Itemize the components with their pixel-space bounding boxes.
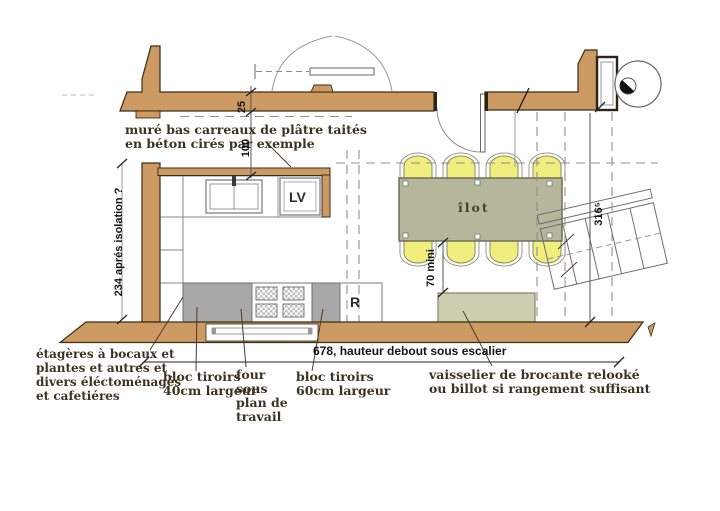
- dim-label-100: 100: [240, 133, 252, 163]
- island-leg: [547, 181, 552, 186]
- fridge-label: R: [350, 294, 360, 310]
- door-swing-arc: [437, 108, 481, 152]
- wall-notch: [136, 111, 160, 118]
- burner-icon: [256, 287, 277, 300]
- island-leg: [403, 181, 408, 186]
- boiler-symbol-icon: [615, 61, 661, 107]
- dim-label-234: 234 aprés isolation ?: [113, 162, 127, 322]
- dim-label-678: 678, hauteur debout sous escalier: [313, 344, 506, 358]
- island-leg: [403, 233, 408, 238]
- wall-fragment: [648, 323, 655, 336]
- drawer-block-60: [312, 283, 340, 322]
- door-leaf: [481, 94, 486, 152]
- tall-cabinet-column: [160, 176, 183, 322]
- dim-label-25: 25: [236, 95, 248, 119]
- burner-icon: [283, 304, 304, 317]
- legend-drawer-60: bloc tiroirs 60cm largeur: [296, 370, 390, 398]
- window-casement: [255, 36, 392, 91]
- top-wall-right: [485, 50, 597, 110]
- burner-icon: [256, 304, 277, 317]
- wall-end-cap: [434, 92, 437, 111]
- legend-oven: four sous plan de travail: [236, 368, 288, 424]
- dresser-block: [438, 293, 535, 322]
- wall-step: [311, 85, 333, 92]
- window-swing-arc: [272, 36, 332, 91]
- island-leg: [547, 233, 552, 238]
- wall-end-cap: [485, 92, 488, 111]
- burner-icon: [283, 287, 304, 300]
- low-wall-return: [322, 175, 330, 217]
- cooktop: [252, 283, 312, 322]
- window-leaf: [310, 68, 374, 75]
- island-leg: [475, 180, 480, 185]
- floor-plan-canvas: muré bas carreaux de plâtre taités en bé…: [0, 0, 720, 511]
- low-wall: [158, 168, 330, 176]
- bottom-wall: [60, 322, 643, 343]
- island-label: îlot: [458, 200, 490, 215]
- top-wall-left: [120, 46, 434, 111]
- island-leg: [475, 234, 480, 239]
- door: [437, 94, 485, 152]
- dim-label-316: 316⁵: [593, 192, 605, 236]
- legend-shelves: étagères à bocaux et plantes et autres e…: [36, 347, 181, 403]
- plan-drawing: [0, 0, 720, 511]
- window-swing-arc: [335, 36, 392, 91]
- bottom-wall-window: [206, 324, 318, 341]
- dim-label-70: 70 mini: [425, 241, 437, 295]
- dishwasher-label: LV: [289, 189, 306, 205]
- door-frame: [597, 57, 617, 110]
- legend-dresser: vaisselier de brocante relooké ou billot…: [429, 368, 650, 396]
- fridge-unit: [340, 283, 382, 322]
- left-wall: [142, 163, 160, 322]
